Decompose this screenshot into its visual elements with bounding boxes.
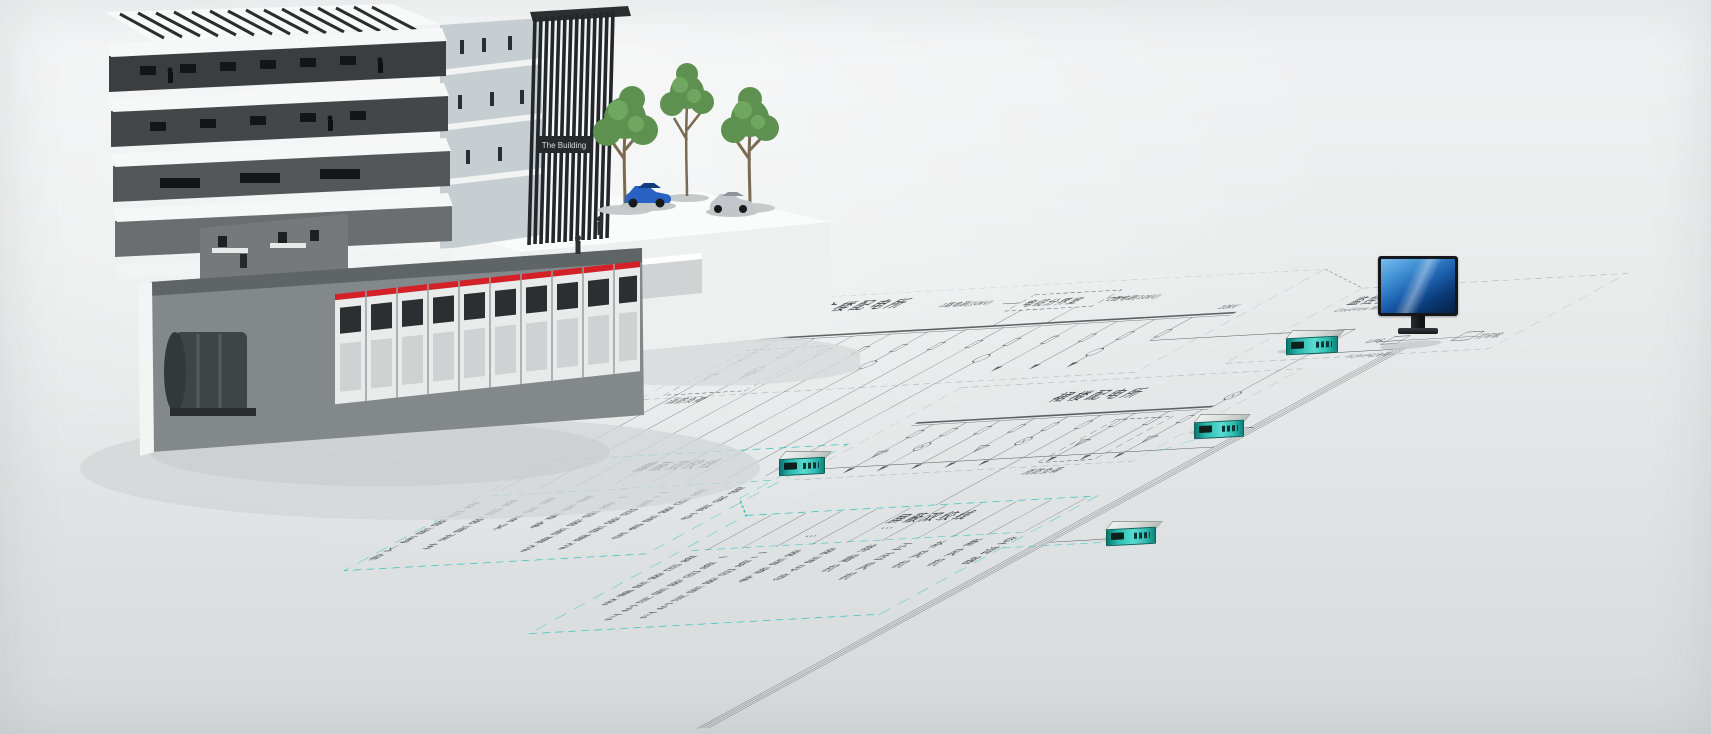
monitor-base (1398, 328, 1438, 334)
gateway-device (1286, 330, 1336, 356)
monitor-bezel (1378, 256, 1458, 316)
gateway-device (1106, 521, 1154, 546)
gateway-front-face (1194, 420, 1244, 440)
gateway-front-face (1106, 527, 1156, 547)
building-sign-text: The Building (542, 141, 586, 150)
building-illustration: The Building (80, 0, 860, 660)
building-sign: The Building (536, 136, 592, 153)
gateway-front-face (779, 457, 825, 476)
monitor-screen (1381, 259, 1455, 313)
monitoring-computer (1376, 256, 1460, 348)
monitor-stand (1411, 316, 1425, 328)
gateway-device (1194, 414, 1242, 439)
gateway-front-face (1286, 336, 1338, 356)
scene: 主楼配电所 电缆分界室 1路电源(10kV) 2路电源(10kV) 10kV 消… (0, 0, 1711, 734)
gateway-device (779, 451, 823, 474)
